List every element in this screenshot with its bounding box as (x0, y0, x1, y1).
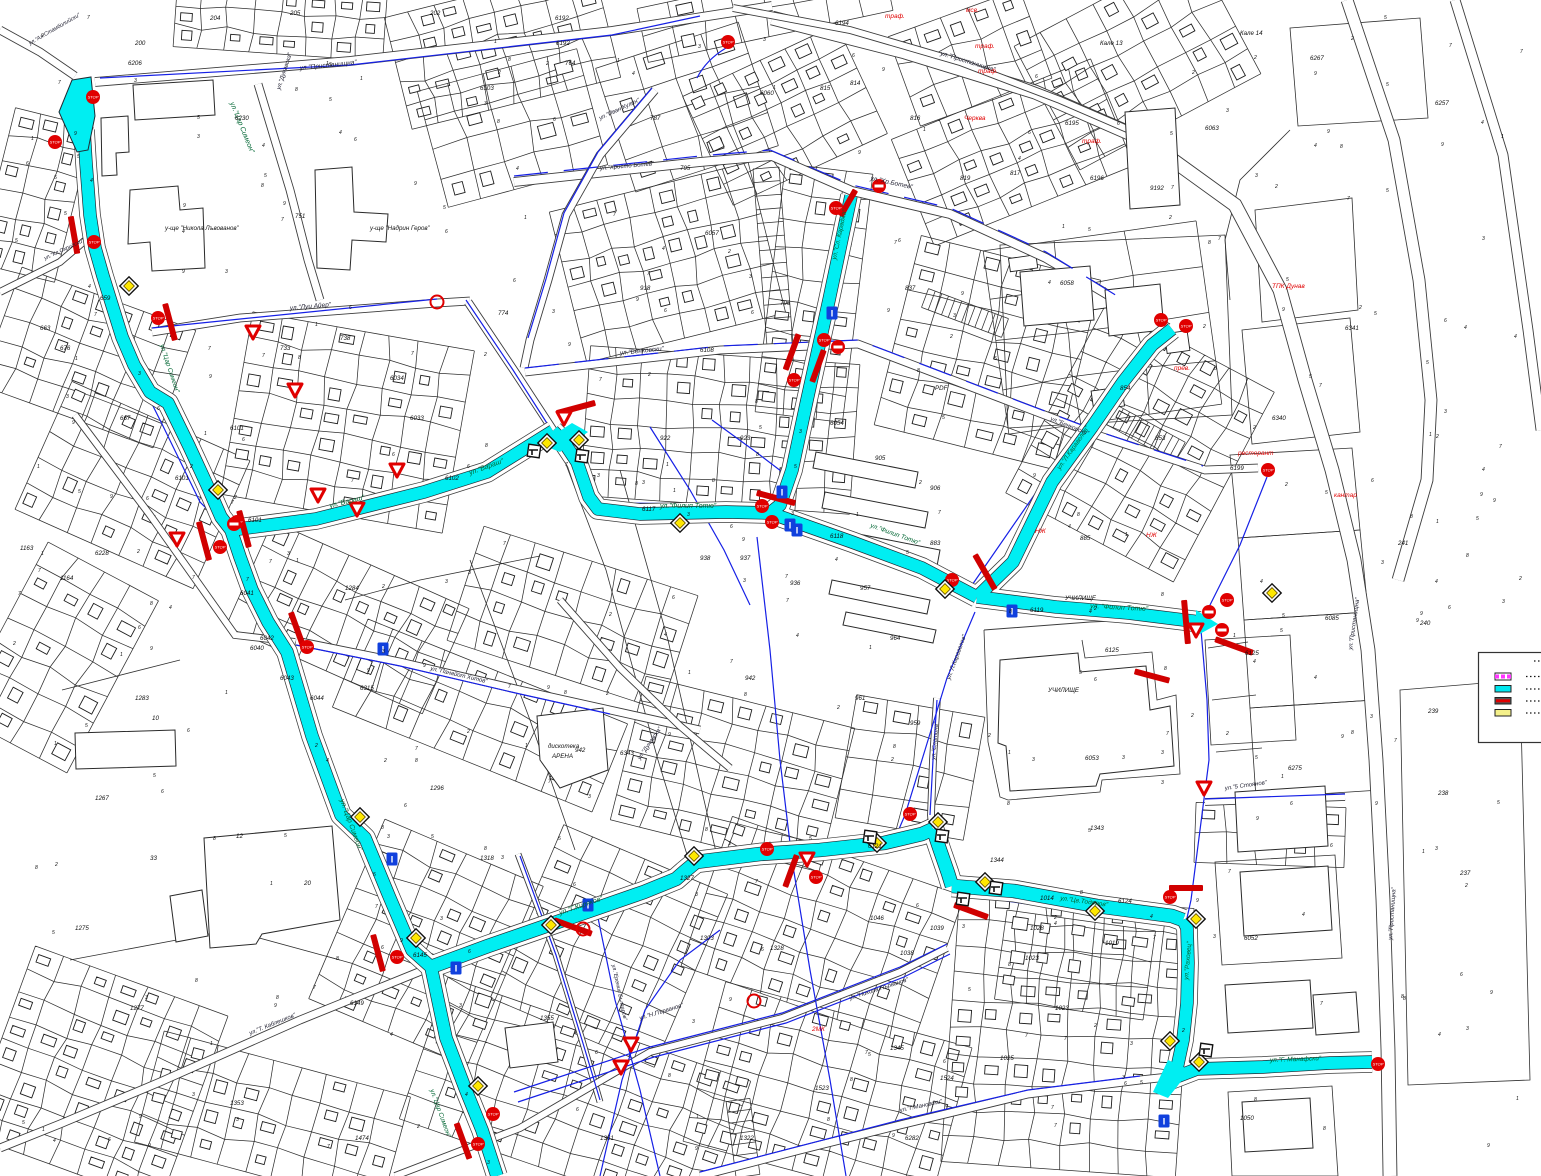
svg-text:6: 6 (161, 789, 164, 795)
svg-text:5: 5 (264, 173, 267, 179)
svg-text:959: 959 (910, 720, 921, 727)
svg-text:4: 4 (326, 758, 329, 764)
svg-text:6: 6 (1371, 478, 1374, 484)
svg-text:4: 4 (1464, 325, 1467, 331)
svg-text:885: 885 (1080, 535, 1091, 542)
svg-text:STOP: STOP (1165, 895, 1176, 900)
svg-text:9: 9 (1033, 473, 1036, 479)
svg-text:202: 202 (429, 10, 441, 17)
svg-text:3: 3 (799, 429, 802, 435)
svg-text:8: 8 (295, 87, 298, 93)
svg-text:1039: 1039 (930, 925, 944, 932)
svg-text:1343: 1343 (1090, 825, 1104, 832)
svg-text:7: 7 (246, 577, 249, 583)
svg-text:STOP: STOP (811, 875, 822, 880)
svg-text:3: 3 (1122, 1075, 1125, 1081)
svg-text:4: 4 (1438, 1032, 1441, 1038)
svg-text:1: 1 (1062, 224, 1065, 230)
svg-text:923: 923 (740, 435, 751, 442)
svg-text:9: 9 (400, 938, 403, 944)
svg-text:траф.: траф. (978, 68, 998, 75)
svg-text:5: 5 (1476, 516, 1479, 522)
svg-text:6282: 6282 (905, 1135, 919, 1142)
svg-text:8: 8 (1323, 1126, 1326, 1132)
svg-text:1: 1 (494, 39, 497, 45)
svg-text:2МК: 2МК (811, 1026, 826, 1033)
svg-text:942: 942 (745, 675, 756, 682)
svg-text:6206: 6206 (128, 60, 142, 67)
svg-text:9: 9 (887, 308, 890, 314)
svg-text:STOP: STOP (723, 40, 734, 45)
svg-text:3: 3 (1381, 560, 1384, 566)
svg-text:816: 816 (910, 115, 921, 122)
svg-text:5: 5 (1325, 490, 1328, 496)
svg-text:STOP: STOP (831, 206, 842, 211)
svg-text:1353: 1353 (230, 1100, 244, 1107)
svg-text:4: 4 (465, 1092, 468, 1098)
svg-text:3: 3 (66, 394, 69, 400)
svg-text:6: 6 (138, 625, 141, 631)
svg-text:6: 6 (445, 229, 448, 235)
svg-text:STOP: STOP (757, 504, 768, 509)
svg-text:2: 2 (1464, 883, 1468, 889)
svg-text:6: 6 (157, 406, 160, 412)
svg-text:9: 9 (182, 269, 185, 275)
svg-text:5: 5 (1384, 15, 1387, 21)
svg-text:237: 237 (1459, 870, 1471, 877)
svg-text:8: 8 (484, 846, 487, 852)
svg-text:6033: 6033 (410, 415, 424, 422)
svg-text:7: 7 (192, 575, 195, 581)
svg-text:7: 7 (411, 351, 414, 357)
svg-text:1: 1 (75, 356, 78, 362)
svg-text:кантар: кантар (1334, 492, 1357, 499)
svg-text:6043: 6043 (280, 675, 294, 682)
svg-text:1: 1 (1422, 849, 1425, 855)
svg-text:3: 3 (134, 78, 137, 84)
svg-text:STOP: STOP (473, 1142, 484, 1147)
svg-text:STOP: STOP (50, 140, 61, 145)
svg-text:7: 7 (785, 574, 788, 580)
svg-text:815: 815 (820, 85, 831, 92)
svg-text:8: 8 (1208, 240, 1211, 246)
svg-text:6: 6 (761, 947, 764, 953)
svg-text:2: 2 (1190, 713, 1194, 719)
svg-text:2: 2 (1284, 482, 1288, 488)
svg-text:1: 1 (210, 1041, 213, 1047)
svg-text:6: 6 (751, 310, 754, 316)
svg-text:6103: 6103 (480, 85, 494, 92)
svg-text:5: 5 (794, 464, 797, 470)
svg-text:2: 2 (1350, 36, 1354, 42)
svg-text:8: 8 (381, 825, 384, 831)
svg-text:7: 7 (508, 684, 511, 690)
svg-text:7: 7 (755, 879, 758, 885)
svg-text:3: 3 (197, 134, 200, 140)
svg-text:Кале 14: Кале 14 (1240, 30, 1263, 37)
svg-text:5: 5 (443, 205, 446, 211)
svg-text:6: 6 (1460, 972, 1463, 978)
svg-text:2: 2 (836, 705, 840, 711)
svg-text:5: 5 (373, 872, 376, 878)
svg-text:8: 8 (1080, 890, 1083, 896)
svg-text:6145: 6145 (413, 952, 427, 959)
svg-text:6267: 6267 (1310, 55, 1324, 62)
svg-text:НЖ: НЖ (1035, 528, 1047, 535)
svg-text:6: 6 (1124, 1081, 1127, 1087)
svg-text:прев.: прев. (1174, 365, 1190, 372)
svg-text:4: 4 (835, 557, 838, 563)
svg-text:7: 7 (94, 312, 97, 318)
svg-text:9: 9 (882, 67, 885, 73)
svg-text:6044: 6044 (310, 695, 324, 702)
svg-text:6: 6 (354, 137, 357, 143)
svg-text:3: 3 (695, 892, 698, 898)
svg-text:6: 6 (553, 117, 556, 123)
svg-text:1: 1 (326, 61, 329, 67)
svg-text:6052: 6052 (1244, 935, 1258, 942)
svg-text:4: 4 (1150, 914, 1153, 920)
svg-text:1: 1 (31, 136, 34, 142)
svg-text:3: 3 (1213, 934, 1216, 940)
svg-text:4: 4 (1314, 675, 1317, 681)
svg-text:6149: 6149 (350, 1000, 364, 1007)
svg-text:3: 3 (1444, 409, 1447, 415)
svg-text:6257: 6257 (1435, 100, 1449, 107)
svg-text:7: 7 (415, 746, 418, 752)
svg-text:1296: 1296 (430, 785, 444, 792)
svg-text:1327: 1327 (680, 875, 694, 882)
svg-text:STOP: STOP (302, 645, 313, 650)
svg-text:7: 7 (262, 353, 265, 359)
svg-text:854: 854 (1120, 385, 1131, 392)
svg-text:5: 5 (968, 987, 971, 993)
svg-text:9: 9 (1256, 816, 1259, 822)
svg-text:787: 787 (650, 115, 661, 122)
svg-text:1: 1 (296, 558, 299, 564)
svg-text:8: 8 (508, 57, 511, 63)
svg-text:9: 9 (695, 1146, 698, 1152)
svg-text:3: 3 (487, 1160, 490, 1166)
svg-text:2: 2 (608, 612, 612, 618)
svg-text:7: 7 (58, 80, 61, 86)
svg-text:3: 3 (138, 371, 141, 377)
svg-text:5: 5 (1309, 374, 1312, 380)
svg-text:3: 3 (588, 794, 591, 800)
svg-text:6192: 6192 (555, 15, 569, 22)
svg-text:6228: 6228 (95, 550, 109, 557)
svg-text:7: 7 (1051, 1105, 1054, 1111)
svg-text:7: 7 (613, 212, 616, 218)
svg-text:2: 2 (1093, 1023, 1097, 1029)
svg-text:659: 659 (100, 295, 111, 302)
svg-text:6101: 6101 (248, 517, 262, 524)
svg-text:УЧИЛИЩЕ: УЧИЛИЩЕ (1064, 595, 1097, 602)
svg-text:9: 9 (72, 420, 75, 426)
svg-text:6: 6 (730, 524, 733, 530)
svg-text:1328: 1328 (770, 945, 784, 952)
svg-text:1: 1 (923, 127, 926, 133)
svg-text:1: 1 (1125, 532, 1128, 538)
svg-text:6117: 6117 (642, 506, 656, 513)
svg-text:3: 3 (687, 512, 690, 518)
svg-text:9: 9 (150, 646, 153, 652)
svg-text:205: 205 (289, 10, 301, 17)
svg-text:1: 1 (120, 652, 123, 658)
svg-text:7: 7 (281, 217, 284, 223)
svg-text:6275: 6275 (1288, 765, 1302, 772)
svg-text:4: 4 (1481, 120, 1484, 126)
svg-text:663: 663 (40, 325, 51, 332)
svg-text:5: 5 (284, 833, 287, 839)
svg-text:7: 7 (38, 568, 41, 574)
svg-text:7: 7 (208, 346, 211, 352)
svg-text:8: 8 (1403, 996, 1406, 1002)
svg-text:2: 2 (1274, 184, 1278, 190)
svg-text:9: 9 (414, 181, 417, 187)
svg-text:4: 4 (1435, 579, 1438, 585)
svg-text:4: 4 (1048, 280, 1051, 286)
svg-text:6: 6 (1028, 130, 1031, 136)
svg-text:6034: 6034 (390, 375, 404, 382)
svg-text:7: 7 (647, 271, 650, 277)
svg-text:5: 5 (809, 836, 812, 842)
svg-text:6085: 6085 (1325, 615, 1339, 622)
svg-text:6: 6 (595, 1050, 598, 1056)
svg-text:938: 938 (700, 555, 711, 562)
svg-text:676: 676 (60, 345, 71, 352)
svg-text:9: 9 (961, 291, 964, 297)
svg-text:3: 3 (1226, 108, 1229, 114)
svg-text:9: 9 (139, 1114, 142, 1120)
svg-text:2: 2 (136, 549, 140, 555)
svg-text:STOP: STOP (1222, 598, 1233, 603)
svg-text:STOP: STOP (89, 240, 100, 245)
svg-text:8: 8 (1466, 553, 1469, 559)
svg-text:9192: 9192 (1150, 185, 1164, 192)
svg-text:5: 5 (78, 489, 81, 495)
svg-text:I: I (796, 526, 799, 536)
svg-text:1: 1 (617, 58, 620, 64)
svg-text:8: 8 (755, 399, 758, 405)
svg-text:6340: 6340 (1272, 415, 1286, 422)
svg-text:3: 3 (1255, 173, 1258, 179)
svg-text:3: 3 (440, 916, 443, 922)
svg-text:7: 7 (87, 15, 90, 21)
svg-text:4: 4 (664, 632, 667, 638)
svg-text:5: 5 (77, 154, 80, 160)
svg-text:8: 8 (1007, 801, 1010, 807)
svg-text:5: 5 (85, 723, 88, 729)
svg-text:7: 7 (1153, 935, 1156, 941)
svg-text:7: 7 (730, 659, 733, 665)
svg-text:STOP: STOP (488, 1112, 499, 1117)
svg-text:7: 7 (1064, 1036, 1067, 1042)
svg-text:2: 2 (483, 352, 487, 358)
svg-text:6341: 6341 (1345, 325, 1359, 332)
svg-text:2: 2 (189, 464, 193, 470)
svg-text:6: 6 (404, 803, 407, 809)
svg-text:6: 6 (672, 595, 675, 601)
svg-text:4: 4 (182, 229, 185, 235)
svg-text:6: 6 (242, 437, 245, 443)
svg-text:9: 9 (209, 374, 212, 380)
svg-text:1046: 1046 (870, 915, 884, 922)
svg-text:3: 3 (1122, 755, 1125, 761)
svg-text:8: 8 (261, 183, 264, 189)
svg-text:2: 2 (1253, 55, 1257, 61)
svg-text:STOP: STOP (392, 955, 403, 960)
svg-text:6057: 6057 (705, 230, 719, 237)
svg-text:4: 4 (1054, 921, 1057, 927)
svg-text:8: 8 (1164, 666, 1167, 672)
svg-text:6119: 6119 (1030, 607, 1044, 614)
svg-text:I: I (831, 309, 834, 319)
svg-text:5: 5 (1088, 227, 1091, 233)
svg-text:9: 9 (742, 537, 745, 543)
svg-text:8: 8 (827, 1117, 830, 1123)
svg-text:8: 8 (1161, 592, 1164, 598)
svg-text:9: 9 (858, 150, 861, 156)
svg-text:667: 667 (120, 415, 131, 422)
svg-text:1: 1 (524, 215, 527, 221)
svg-text:2: 2 (949, 334, 953, 340)
svg-text:8: 8 (1214, 366, 1217, 372)
svg-text:1164: 1164 (60, 575, 74, 582)
svg-text:8: 8 (485, 443, 488, 449)
svg-text:964: 964 (890, 635, 901, 642)
svg-text:9: 9 (892, 1133, 895, 1139)
svg-text:3: 3 (791, 511, 794, 517)
svg-text:7: 7 (327, 1144, 330, 1150)
svg-text:8: 8 (1254, 1097, 1257, 1103)
svg-text:6058: 6058 (1060, 280, 1074, 287)
svg-text:1474: 1474 (355, 1135, 369, 1142)
svg-text:5: 5 (942, 415, 945, 421)
svg-text:957: 957 (860, 585, 871, 592)
svg-text:8: 8 (336, 956, 339, 962)
svg-text:837: 837 (905, 285, 916, 292)
svg-text:6: 6 (573, 882, 576, 888)
svg-text:6: 6 (513, 278, 516, 284)
svg-text:733: 733 (280, 345, 291, 352)
svg-text:1: 1 (1429, 432, 1432, 438)
svg-text:5: 5 (1374, 311, 1377, 317)
svg-text:3: 3 (468, 570, 471, 576)
svg-text:7: 7 (1449, 43, 1452, 49)
svg-text:7: 7 (1054, 1123, 1057, 1129)
svg-text:1050: 1050 (1240, 1115, 1254, 1122)
svg-text:9: 9 (148, 1143, 151, 1149)
svg-text:5: 5 (1088, 828, 1091, 834)
svg-text:1028: 1028 (1030, 925, 1044, 932)
svg-text:2: 2 (1168, 215, 1172, 221)
svg-text:6108: 6108 (700, 347, 714, 354)
svg-text:1303: 1303 (700, 935, 714, 942)
svg-text:5: 5 (52, 930, 55, 936)
svg-text:1322: 1322 (740, 1135, 754, 1142)
svg-text:3: 3 (145, 995, 148, 1001)
svg-text:4: 4 (1260, 579, 1263, 585)
svg-text:STOP: STOP (819, 338, 830, 343)
svg-text:7: 7 (938, 510, 941, 516)
svg-text:6192: 6192 (556, 40, 570, 47)
svg-text:1284: 1284 (345, 585, 359, 592)
svg-text:2: 2 (12, 641, 16, 647)
svg-text:200: 200 (134, 40, 146, 47)
svg-text:7: 7 (1394, 738, 1397, 744)
svg-text:9: 9 (41, 33, 44, 39)
svg-text:2: 2 (1435, 434, 1439, 440)
svg-text:6054: 6054 (830, 420, 844, 427)
svg-text:PDF: PDF (935, 385, 949, 392)
svg-text:1: 1 (1436, 519, 1439, 525)
svg-text:6060: 6060 (760, 90, 774, 97)
svg-text:ресторант: ресторант (1237, 450, 1274, 457)
svg-text:3: 3 (692, 1019, 695, 1025)
svg-text:1: 1 (360, 76, 363, 82)
svg-text:9: 9 (668, 732, 671, 738)
svg-text:STOP: STOP (1156, 318, 1167, 323)
svg-text:3: 3 (1161, 780, 1164, 786)
svg-text:3: 3 (642, 480, 645, 486)
svg-text:1: 1 (525, 743, 528, 749)
svg-text:6: 6 (1094, 677, 1097, 683)
svg-text:8: 8 (564, 690, 567, 696)
svg-text:7: 7 (1166, 731, 1169, 737)
svg-text:9: 9 (1490, 990, 1493, 996)
svg-text:7: 7 (548, 779, 551, 785)
svg-text:6: 6 (187, 728, 190, 734)
svg-text:3: 3 (1032, 757, 1035, 763)
svg-text:1523: 1523 (815, 1085, 829, 1092)
svg-text:8: 8 (195, 978, 198, 984)
svg-text:STOP: STOP (153, 316, 164, 321)
svg-text:3: 3 (1370, 714, 1373, 720)
svg-text:6199: 6199 (1230, 465, 1244, 472)
svg-text:1014: 1014 (1040, 895, 1054, 902)
svg-text:5: 5 (22, 1120, 25, 1126)
svg-text:4: 4 (1482, 467, 1485, 473)
svg-text:4: 4 (1302, 912, 1305, 918)
svg-text:дискотека: дискотека (548, 743, 580, 750)
svg-text:4: 4 (390, 1032, 393, 1038)
svg-text:9: 9 (183, 203, 186, 209)
svg-text:906: 906 (930, 485, 941, 492)
svg-text:STOP: STOP (1263, 468, 1274, 473)
svg-text:5: 5 (868, 1052, 871, 1058)
svg-text:5: 5 (994, 356, 997, 362)
svg-text:10: 10 (152, 715, 159, 722)
svg-text:8: 8 (705, 827, 708, 833)
svg-text:1: 1 (673, 488, 676, 494)
svg-text:8: 8 (893, 744, 896, 750)
svg-text:1: 1 (204, 431, 207, 437)
svg-text:9: 9 (547, 685, 550, 691)
svg-text:УЧИЛИЩЕ: УЧИЛИЩЕ (1047, 687, 1080, 694)
svg-text:3: 3 (552, 309, 555, 315)
svg-text:5: 5 (1140, 1080, 1143, 1086)
svg-text:2: 2 (1191, 70, 1195, 76)
svg-text:6063: 6063 (1205, 125, 1219, 132)
svg-text:8: 8 (1410, 514, 1413, 520)
svg-text:8: 8 (1077, 512, 1080, 518)
svg-text:6: 6 (852, 53, 855, 59)
svg-text:STOP: STOP (905, 812, 916, 817)
svg-text:5: 5 (1426, 360, 1429, 366)
svg-text:9: 9 (110, 494, 113, 500)
svg-text:1023: 1023 (1025, 955, 1039, 962)
